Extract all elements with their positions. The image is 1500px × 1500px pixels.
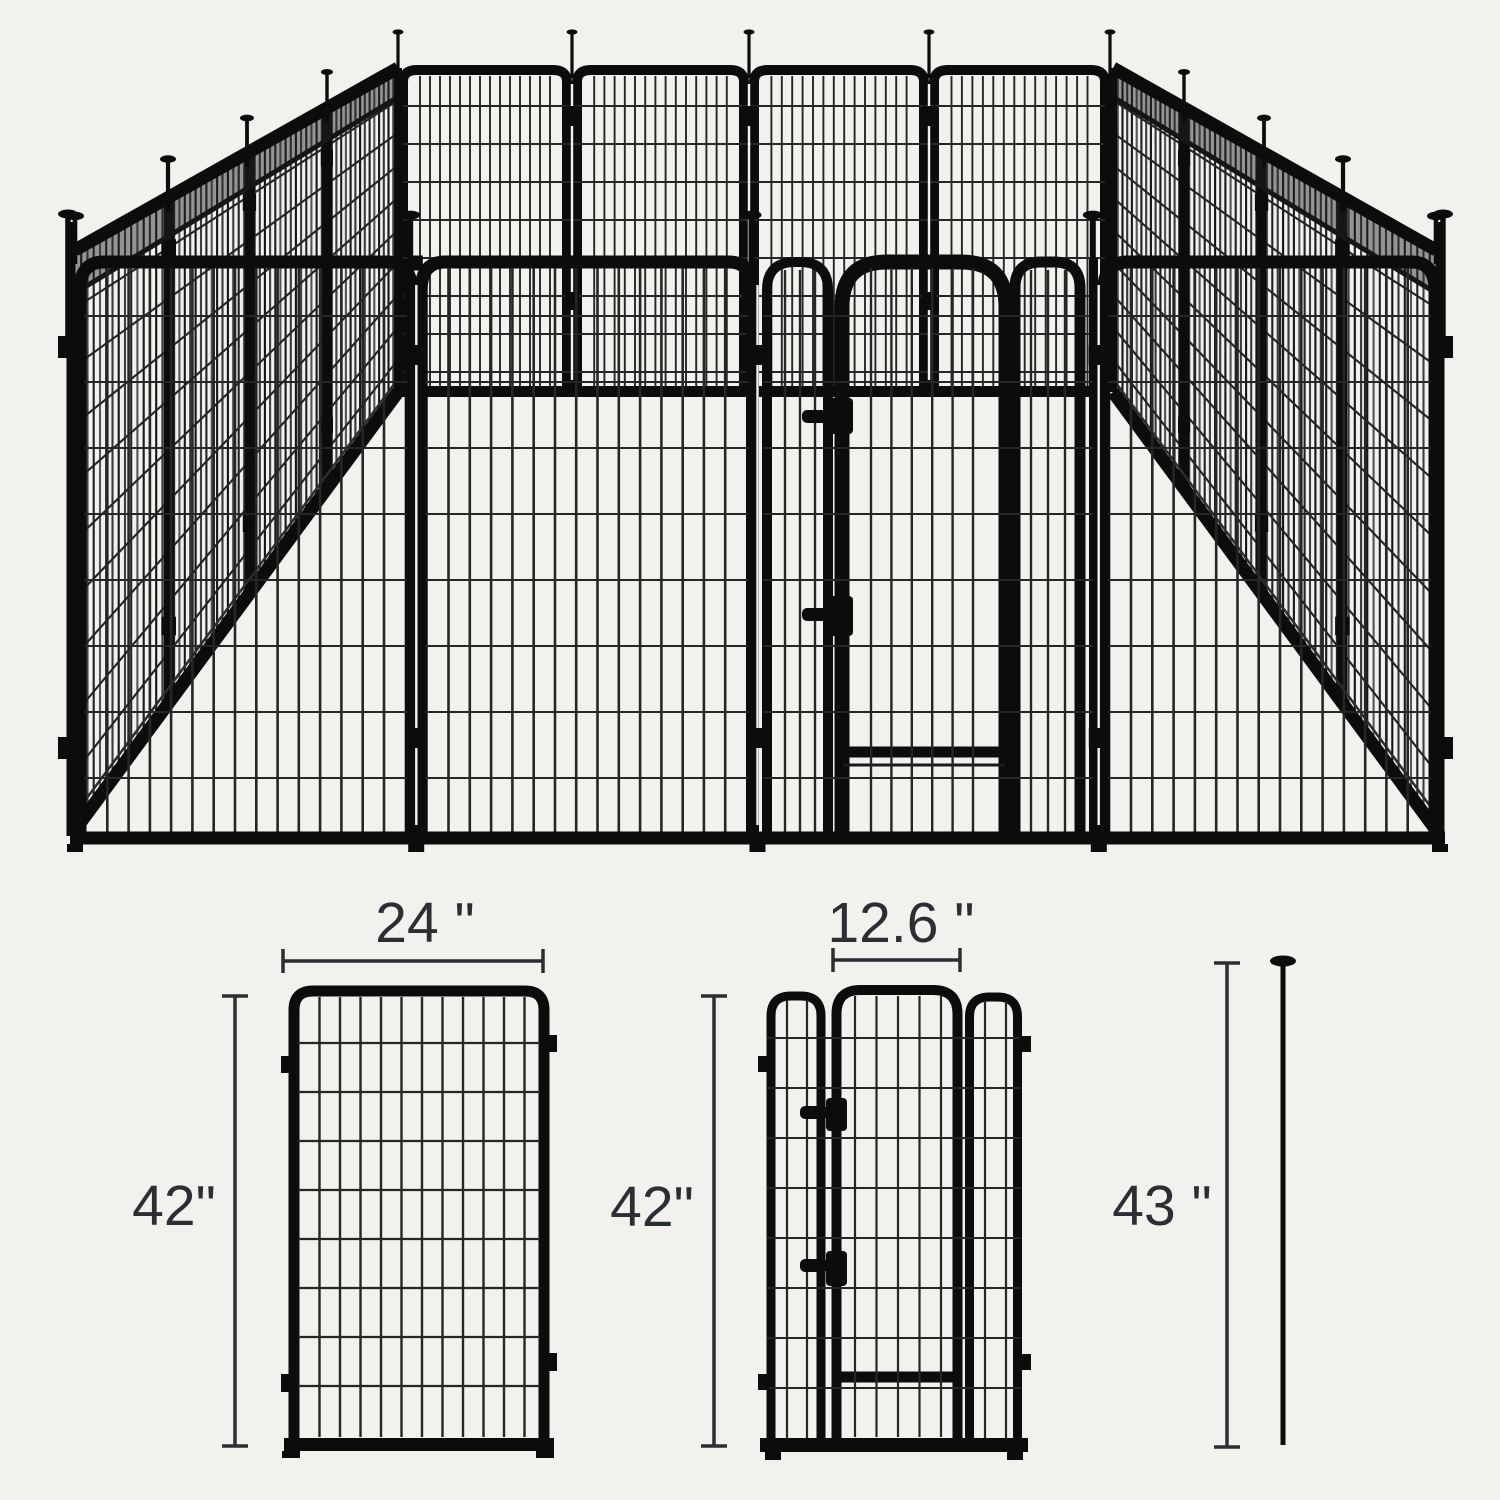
svg-text:42": 42": [132, 1174, 216, 1238]
svg-text:24 ": 24 ": [375, 891, 474, 955]
svg-text:43 ": 43 ": [1112, 1174, 1211, 1238]
svg-text:12.6 ": 12.6 ": [827, 891, 974, 955]
svg-text:42": 42": [610, 1175, 694, 1239]
